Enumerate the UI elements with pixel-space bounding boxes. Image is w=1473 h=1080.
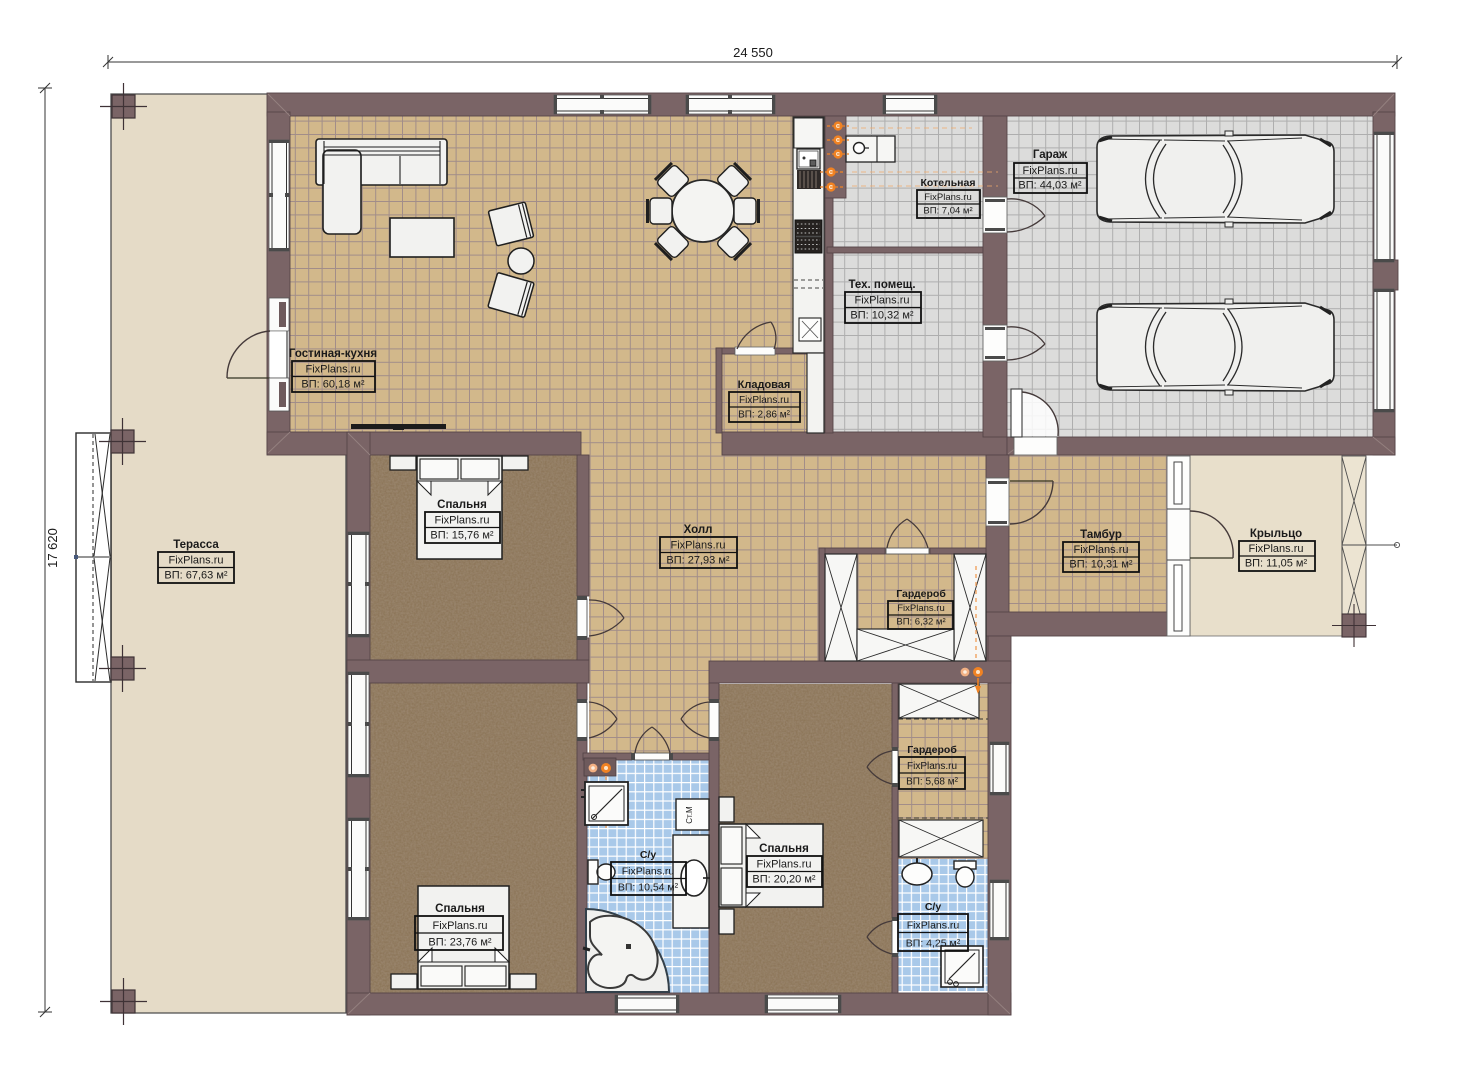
svg-text:С/у: С/у	[925, 901, 942, 913]
svg-text:FixPlans.ru: FixPlans.ru	[854, 295, 909, 307]
svg-text:FixPlans.ru: FixPlans.ru	[907, 920, 960, 932]
svg-text:ВП: 5,68 м²: ВП: 5,68 м²	[906, 777, 959, 788]
svg-text:Крыльцо: Крыльцо	[1250, 528, 1302, 540]
svg-text:Тамбур: Тамбур	[1080, 529, 1122, 541]
svg-text:ВП: 10,54 м²: ВП: 10,54 м²	[618, 882, 679, 894]
svg-text:ВП: 20,20 м²: ВП: 20,20 м²	[752, 874, 816, 886]
svg-text:FixPlans.ru: FixPlans.ru	[622, 866, 675, 878]
svg-text:FixPlans.ru: FixPlans.ru	[434, 515, 489, 527]
svg-text:ВП: 44,03 м²: ВП: 44,03 м²	[1018, 180, 1082, 192]
svg-text:ВП: 2,86 м²: ВП: 2,86 м²	[738, 410, 791, 421]
svg-text:FixPlans.ru: FixPlans.ru	[305, 364, 360, 376]
svg-text:Котельная: Котельная	[921, 177, 976, 189]
svg-text:ВП: 23,76 м²: ВП: 23,76 м²	[428, 937, 492, 949]
svg-text:FixPlans.ru: FixPlans.ru	[756, 859, 811, 871]
svg-text:Холл: Холл	[684, 524, 713, 536]
svg-text:ВП: 10,31 м²: ВП: 10,31 м²	[1069, 559, 1133, 571]
svg-text:Спальня: Спальня	[435, 903, 485, 915]
svg-text:FixPlans.ru: FixPlans.ru	[432, 920, 487, 932]
svg-text:Терасса: Терасса	[173, 539, 219, 551]
svg-text:ВП: 15,76 м²: ВП: 15,76 м²	[430, 530, 494, 542]
svg-text:24 550: 24 550	[733, 45, 773, 60]
svg-text:FixPlans.ru: FixPlans.ru	[1248, 543, 1303, 555]
svg-text:FixPlans.ru: FixPlans.ru	[1022, 165, 1077, 177]
svg-text:Кладовая: Кладовая	[738, 379, 791, 391]
svg-text:17 620: 17 620	[45, 528, 60, 568]
svg-text:Спальня: Спальня	[759, 843, 809, 855]
svg-text:Гараж: Гараж	[1033, 149, 1068, 161]
svg-text:ВП: 10,32 м²: ВП: 10,32 м²	[850, 310, 914, 322]
svg-text:ВП: 67,63 м²: ВП: 67,63 м²	[164, 570, 228, 582]
svg-text:FixPlans.ru: FixPlans.ru	[924, 192, 972, 203]
svg-text:Ст.М: Ст.М	[685, 806, 694, 824]
svg-text:FixPlans.ru: FixPlans.ru	[897, 603, 945, 614]
svg-text:FixPlans.ru: FixPlans.ru	[1073, 544, 1128, 556]
svg-text:Гардероб: Гардероб	[896, 588, 946, 600]
svg-text:Гостиная-кухня: Гостиная-кухня	[289, 348, 377, 360]
svg-text:FixPlans.ru: FixPlans.ru	[670, 540, 725, 552]
svg-text:ВП: 11,05 м²: ВП: 11,05 м²	[1245, 558, 1308, 570]
svg-text:ВП: 27,93 м²: ВП: 27,93 м²	[666, 555, 730, 567]
svg-text:Тех. помещ.: Тех. помещ.	[848, 279, 915, 291]
svg-text:ВП: 60,18 м²: ВП: 60,18 м²	[301, 379, 365, 391]
svg-text:Спальня: Спальня	[437, 499, 487, 511]
svg-text:FixPlans.ru: FixPlans.ru	[739, 395, 789, 406]
svg-text:ВП: 6,32 м²: ВП: 6,32 м²	[896, 617, 945, 628]
svg-text:FixPlans.ru: FixPlans.ru	[168, 555, 223, 567]
svg-text:Гардероб: Гардероб	[907, 744, 957, 756]
svg-text:FixPlans.ru: FixPlans.ru	[907, 761, 957, 772]
svg-text:ВП: 7,04 м²: ВП: 7,04 м²	[923, 206, 972, 217]
svg-text:ВП: 4,25 м²: ВП: 4,25 м²	[906, 938, 961, 950]
svg-text:С/у: С/у	[640, 849, 657, 861]
